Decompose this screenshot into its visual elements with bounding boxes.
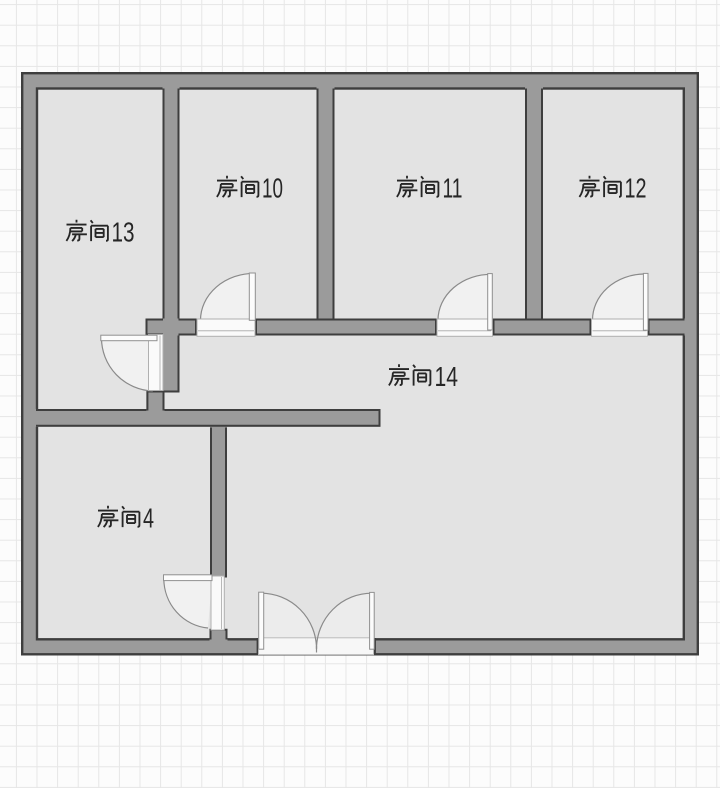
- svg-text:10: 10: [262, 172, 283, 203]
- svg-text:12: 12: [625, 172, 647, 203]
- svg-text:4: 4: [143, 503, 154, 534]
- svg-text:13: 13: [112, 216, 135, 247]
- svg-text:11: 11: [443, 172, 463, 203]
- svg-text:14: 14: [435, 361, 459, 392]
